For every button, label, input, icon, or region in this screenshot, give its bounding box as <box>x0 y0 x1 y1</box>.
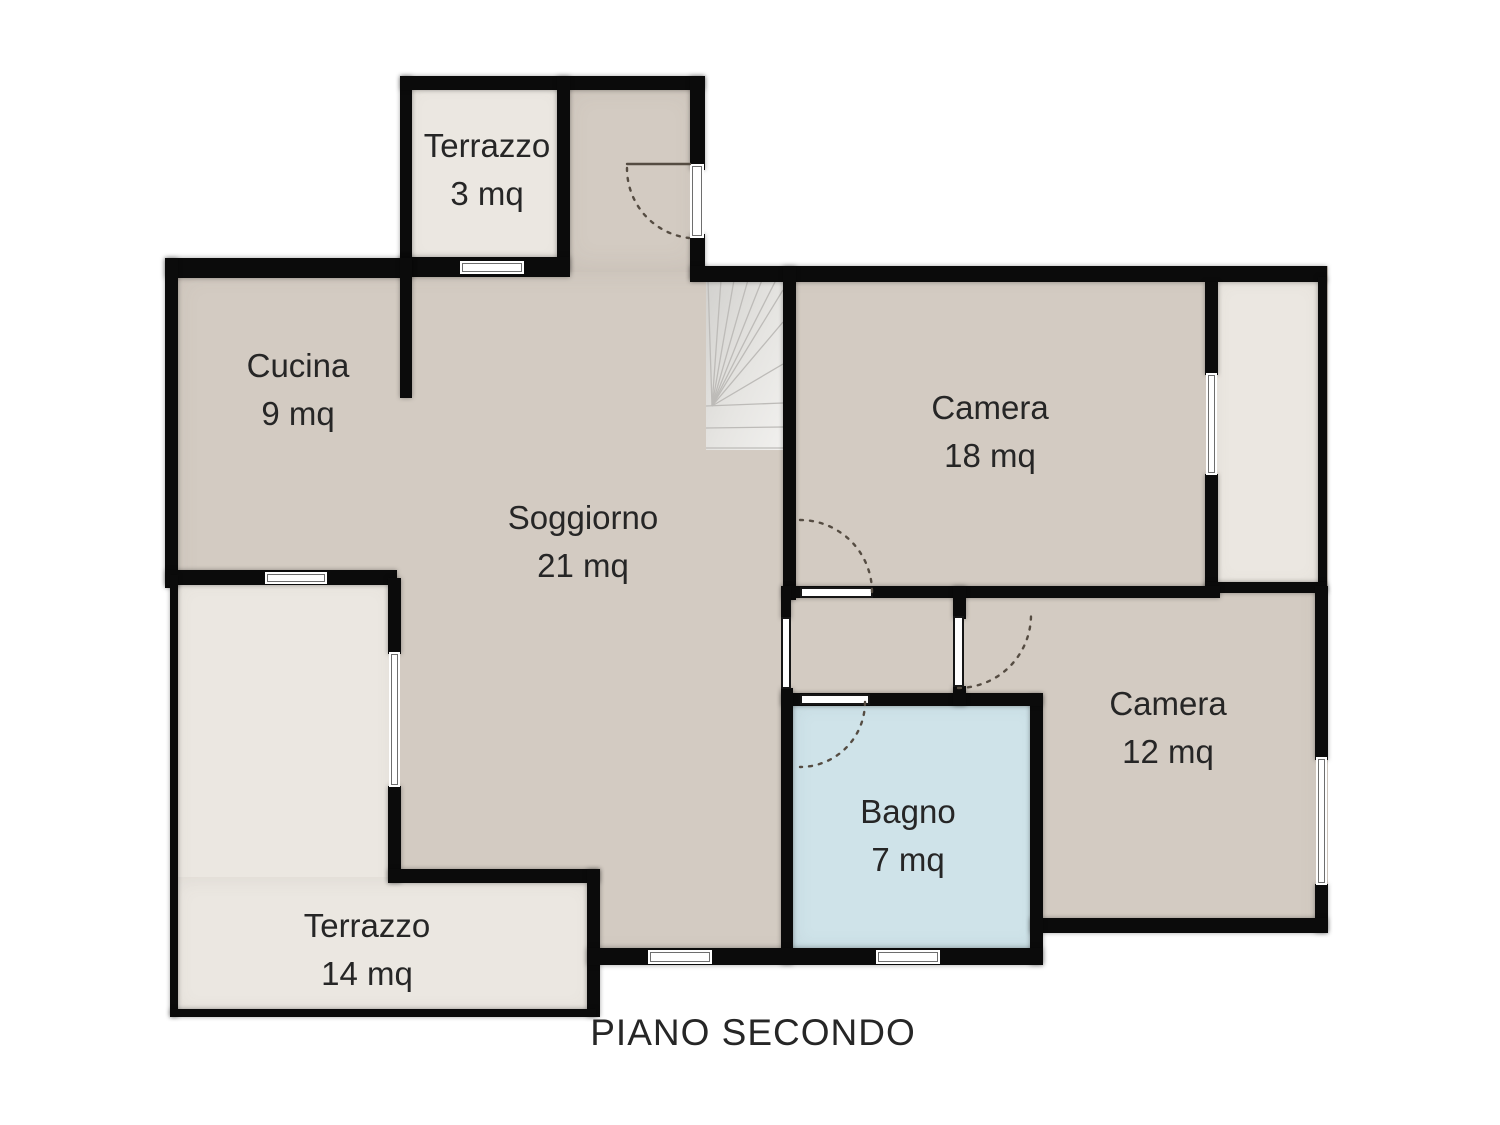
wall <box>165 258 178 588</box>
floor-balcony-right <box>1210 275 1325 590</box>
room-area: 3 mq <box>395 170 579 218</box>
door-leaf-camera-18 <box>800 587 873 598</box>
window-soggiorno-terrazzo <box>389 652 400 787</box>
wall <box>165 258 412 278</box>
wall <box>1205 582 1327 593</box>
room-label-cucina: Cucina 9 mq <box>196 342 400 438</box>
wall <box>170 1009 596 1017</box>
room-label-terrazzo-14: Terrazzo 14 mq <box>265 902 469 998</box>
room-label-camera-18: Camera 18 mq <box>860 384 1120 480</box>
room-area: 12 mq <box>1038 728 1298 776</box>
door-leaf-bagno <box>800 694 870 705</box>
wall <box>953 686 966 706</box>
room-name: Cucina <box>196 342 400 390</box>
wall <box>388 578 401 654</box>
wall <box>1205 474 1218 592</box>
floor-entry-hall <box>560 82 703 272</box>
window-soggiorno-south <box>648 950 712 964</box>
wall <box>1030 918 1328 933</box>
wall <box>1315 586 1328 760</box>
wall <box>781 586 791 619</box>
room-name: Terrazzo <box>395 122 579 170</box>
stairs <box>706 280 783 450</box>
wall <box>690 76 705 170</box>
room-label-terrazzo-3: Terrazzo 3 mq <box>395 122 579 218</box>
room-label-camera-12: Camera 12 mq <box>1038 680 1298 776</box>
floorplan-piano-secondo: Terrazzo 3 mq Cucina 9 mq Soggiorno 21 m… <box>0 0 1500 1125</box>
window-terrazzo-3 <box>460 261 524 274</box>
room-name: Soggiorno <box>448 494 718 542</box>
room-name: Terrazzo <box>265 902 469 950</box>
room-label-soggiorno: Soggiorno 21 mq <box>448 494 718 590</box>
room-area: 21 mq <box>448 542 718 590</box>
room-name: Bagno <box>806 788 1010 836</box>
room-area: 9 mq <box>196 390 400 438</box>
wall <box>783 266 796 600</box>
wall <box>170 575 178 1017</box>
window-camera-18-balcony <box>1206 373 1217 475</box>
room-name: Camera <box>860 384 1120 432</box>
room-area: 14 mq <box>265 950 469 998</box>
room-label-bagno: Bagno 7 mq <box>806 788 1010 884</box>
wall <box>400 76 705 90</box>
room-name: Camera <box>1038 680 1298 728</box>
window-camera-12 <box>1316 757 1327 885</box>
window-cucina <box>265 572 327 584</box>
wall <box>953 586 966 619</box>
floor-title: PIANO SECONDO <box>588 1012 918 1054</box>
wall <box>388 869 600 883</box>
door-leaf-camera-12 <box>953 616 964 687</box>
wall <box>1318 277 1327 593</box>
wall <box>400 258 412 398</box>
window-bagno <box>876 950 940 964</box>
room-area: 18 mq <box>860 432 1120 480</box>
door-leaf-soggiorno-corridor <box>781 617 791 689</box>
wall <box>1205 282 1218 375</box>
room-area: 7 mq <box>806 836 1010 884</box>
wall <box>781 688 793 965</box>
entry-door-opening <box>690 164 704 238</box>
wall <box>587 869 600 1017</box>
